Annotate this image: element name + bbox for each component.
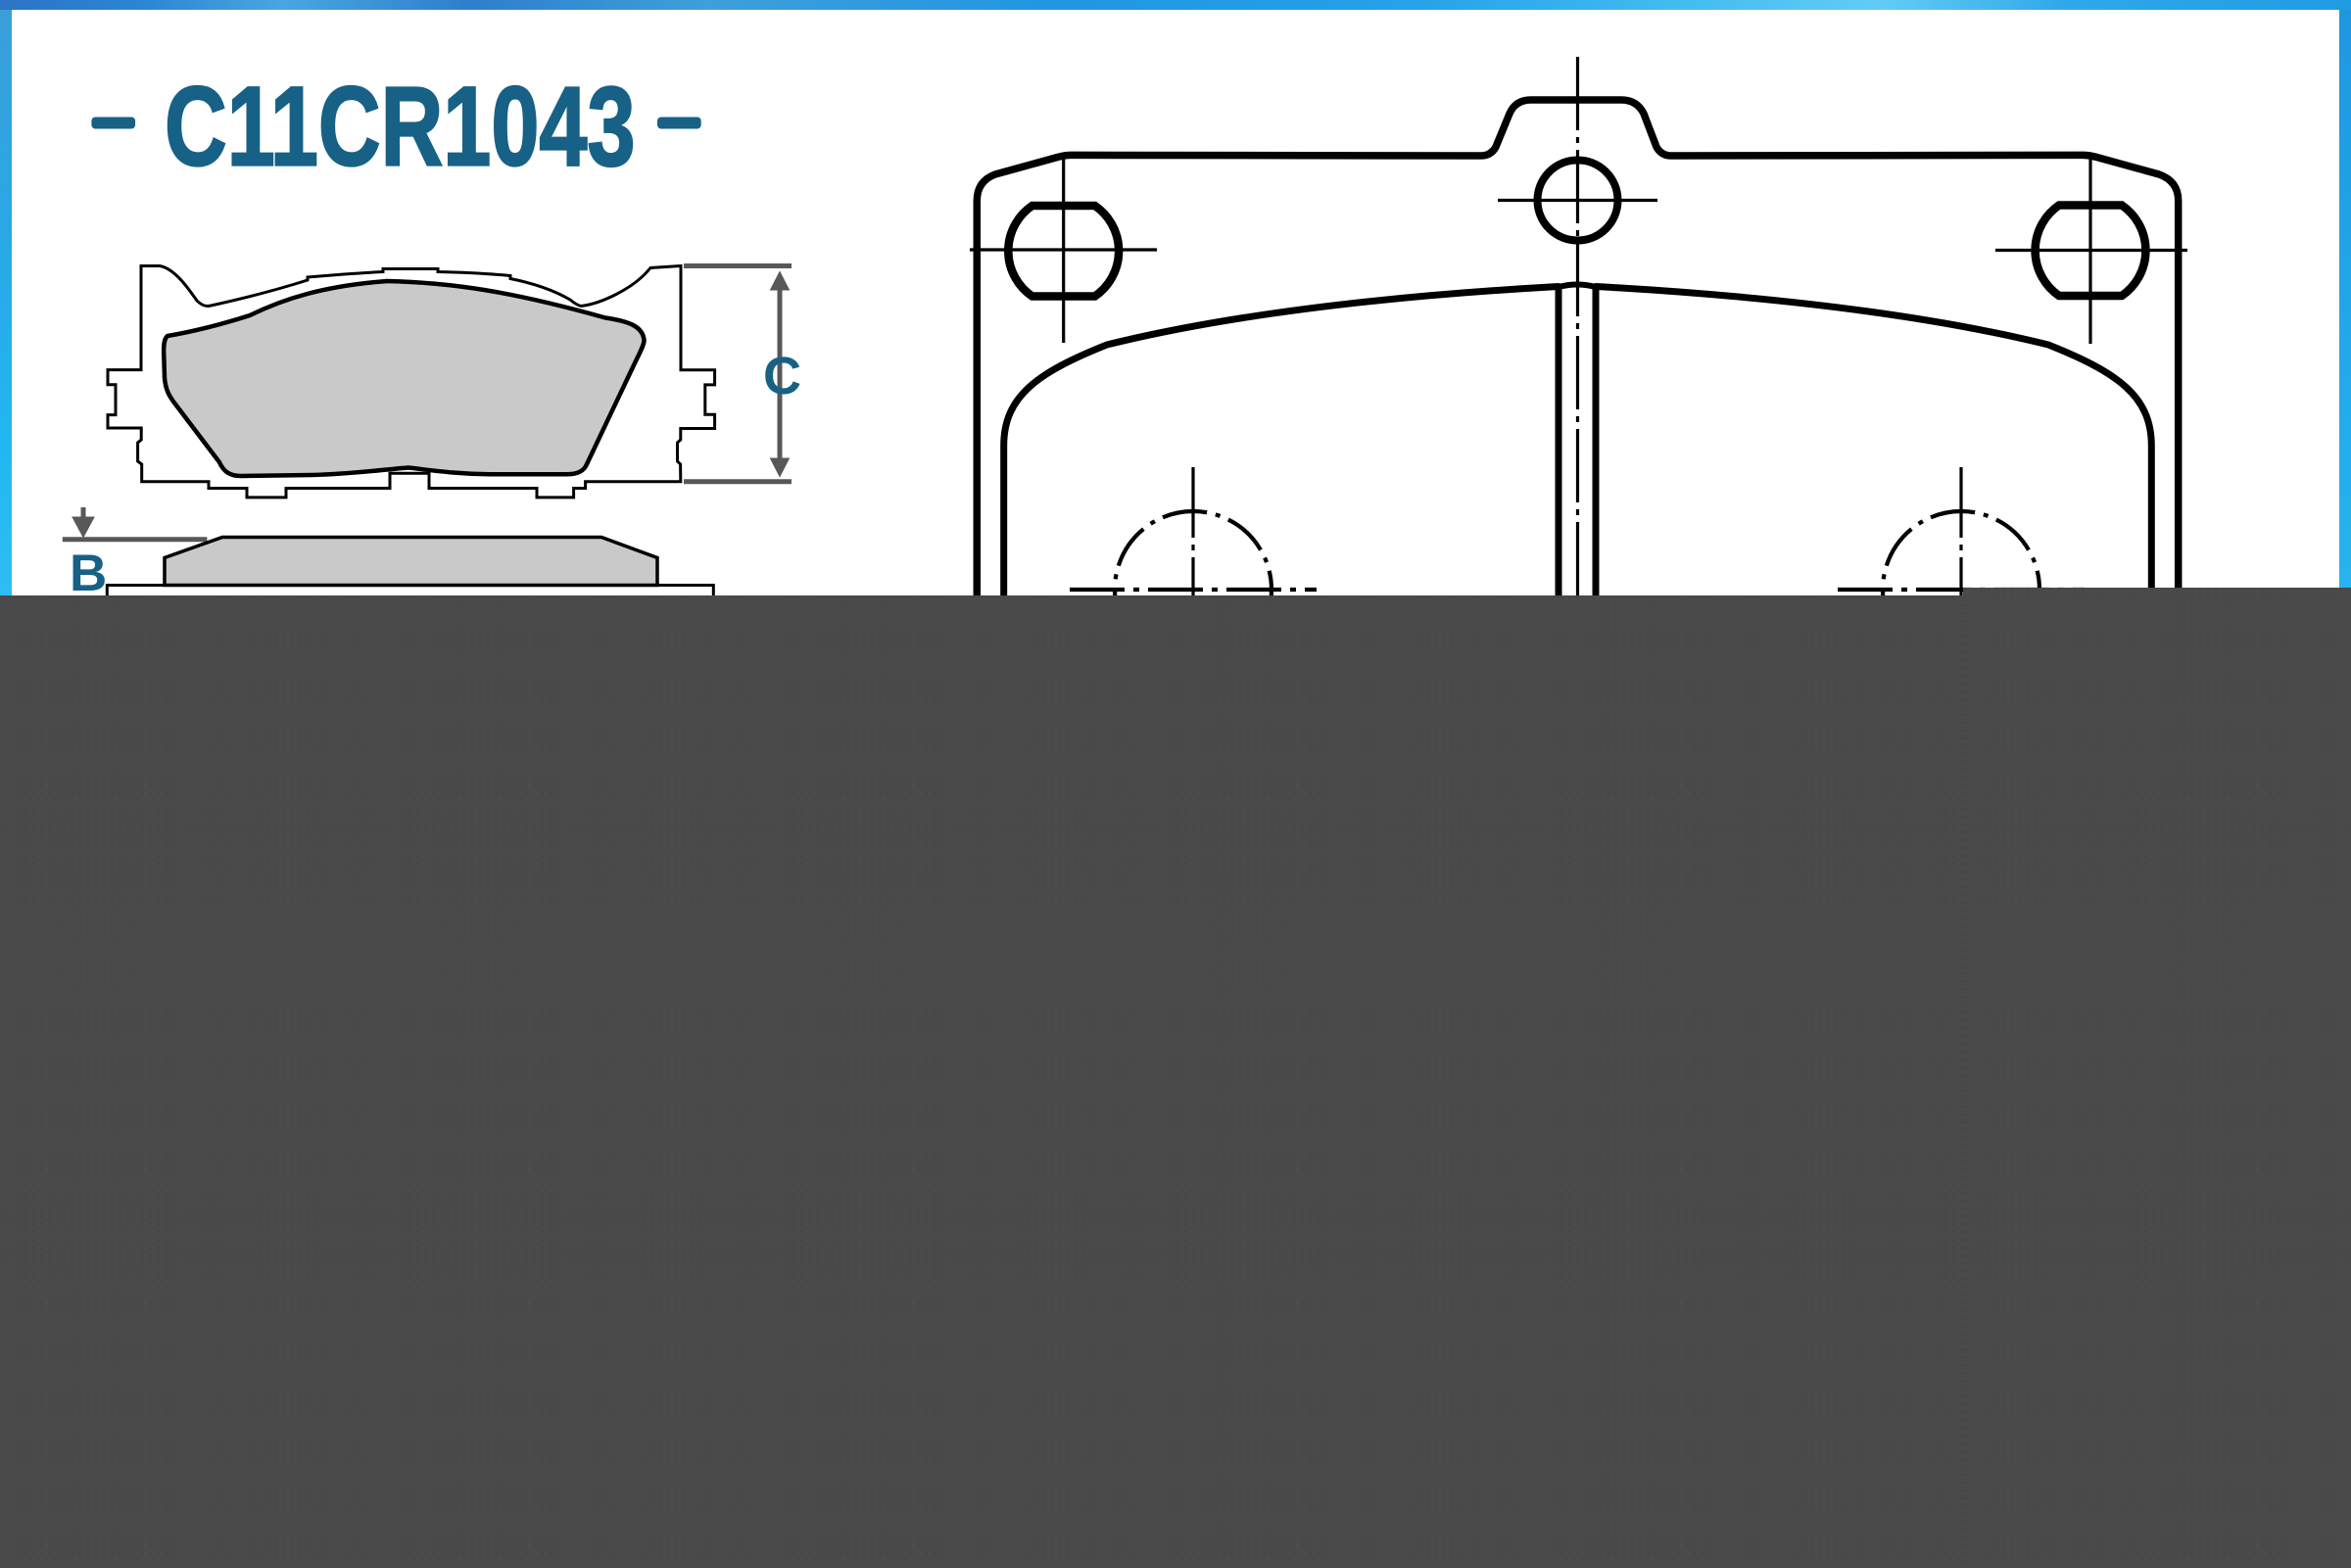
svg-text:B: B [70,545,107,602]
svg-text:C11CR1043: C11CR1043 [165,63,636,189]
svg-text:C: C [763,347,801,405]
